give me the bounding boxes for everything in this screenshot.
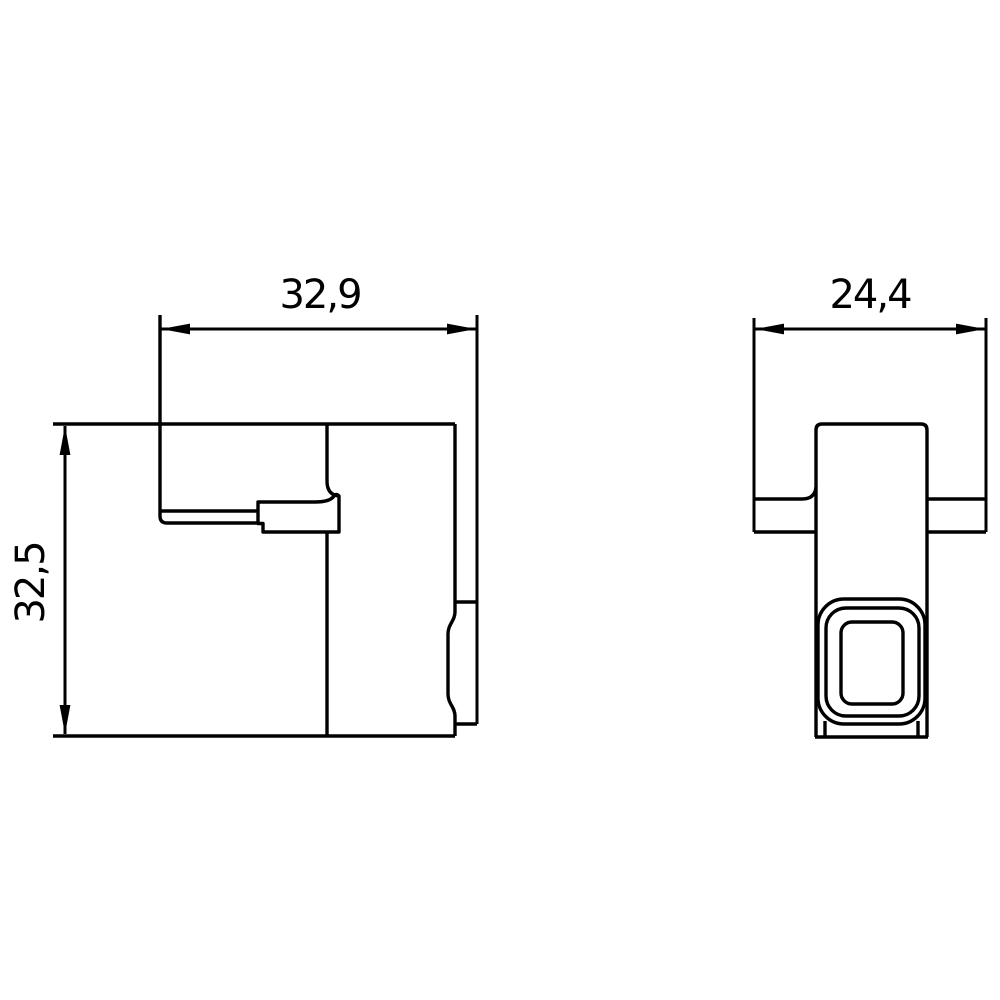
side-view-seal-profile [448, 602, 455, 736]
dimension-front-width-label: 24,4 [829, 272, 911, 318]
side-view-latch-head [258, 495, 339, 533]
front-view-tower-outline [816, 424, 927, 737]
front-view-cavity-opening [841, 622, 903, 704]
side-view-latch-arm-bottom [160, 315, 258, 523]
dimension-arrowhead-up-icon [60, 426, 71, 455]
side-view-parting-line-upper [327, 424, 339, 496]
dimension-side-view-height: 32,5 [8, 426, 70, 734]
dimension-front-view-width: 24,4 [755, 272, 985, 334]
front-view [754, 318, 986, 737]
dimension-side-height-label: 32,5 [8, 542, 54, 623]
front-view-flange-top-left [754, 487, 816, 499]
dimension-arrowhead-down-icon [60, 705, 71, 734]
dimension-arrowhead-right-icon [956, 324, 985, 335]
dimension-arrowhead-right-icon [447, 324, 476, 335]
dimension-side-width-label: 32,9 [279, 272, 360, 318]
dimension-arrowhead-left-icon [161, 324, 190, 335]
dimension-side-view-width: 32,9 [161, 272, 477, 724]
dimension-arrowhead-left-icon [755, 324, 784, 335]
drawing-canvas: 32,9 32,5 24,4 [0, 0, 1000, 1000]
side-view [53, 315, 477, 736]
technical-drawing: 32,9 32,5 24,4 [0, 0, 1000, 1000]
